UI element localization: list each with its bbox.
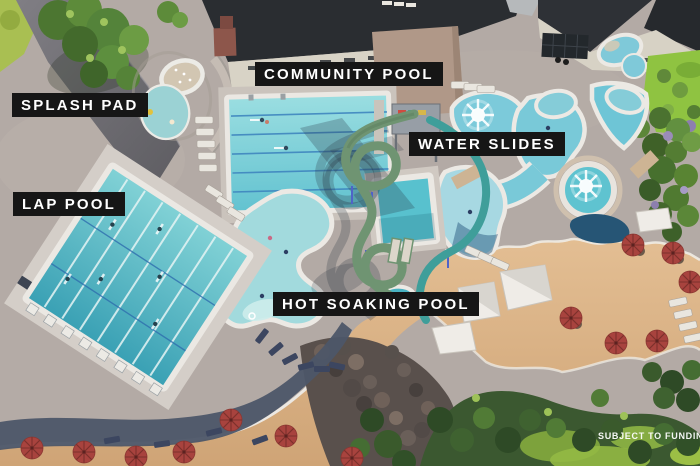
label-splash-pad: SPLASH PAD xyxy=(12,93,148,117)
pool-toy xyxy=(147,109,153,115)
label-lap-pool: LAP POOL xyxy=(13,192,125,216)
funding-disclaimer: SUBJECT TO FUNDING xyxy=(598,431,700,441)
chimney xyxy=(214,28,237,57)
solar-panels xyxy=(541,33,588,59)
label-water-slides: WATER SLIDES xyxy=(409,132,565,156)
label-community-pool: COMMUNITY POOL xyxy=(255,62,443,86)
label-hot-soaking-pool: HOT SOAKING POOL xyxy=(273,292,479,316)
aerial-rendering-aquatic-center: SPLASH PAD COMMUNITY POOL WATER SLIDES L… xyxy=(0,0,700,466)
